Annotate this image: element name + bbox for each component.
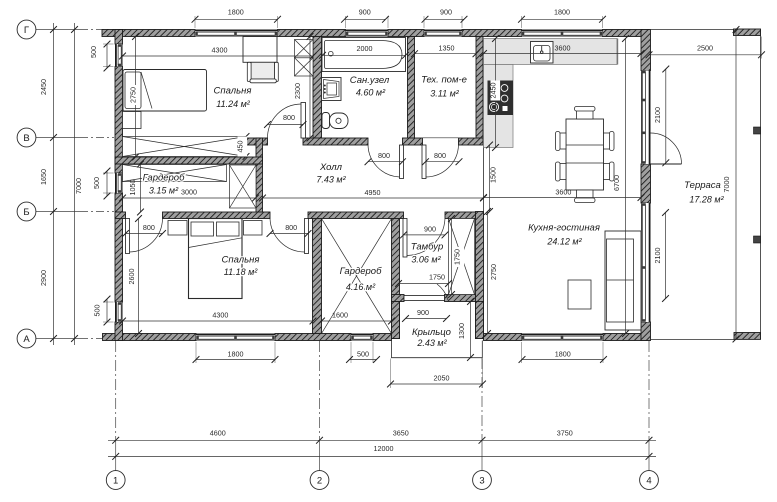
svg-text:2: 2 xyxy=(317,475,322,486)
svg-text:7000: 7000 xyxy=(74,178,83,194)
svg-text:4: 4 xyxy=(646,475,651,486)
svg-text:А: А xyxy=(23,334,30,345)
svg-text:1050: 1050 xyxy=(128,180,137,196)
svg-text:Сан.узел: Сан.узел xyxy=(350,75,390,86)
svg-text:800: 800 xyxy=(285,223,297,232)
svg-text:11.24 м²: 11.24 м² xyxy=(216,99,251,109)
svg-text:900: 900 xyxy=(417,308,429,317)
svg-text:Терраса: Терраса xyxy=(684,180,721,191)
svg-text:500: 500 xyxy=(357,350,369,359)
svg-text:2.43 м²: 2.43 м² xyxy=(416,338,447,348)
svg-text:900: 900 xyxy=(424,225,436,234)
svg-text:450: 450 xyxy=(236,141,245,153)
svg-text:11.18 м²: 11.18 м² xyxy=(224,267,259,277)
svg-text:1300: 1300 xyxy=(457,323,466,339)
svg-text:1800: 1800 xyxy=(554,7,570,16)
svg-text:3650: 3650 xyxy=(393,429,409,438)
svg-text:800: 800 xyxy=(143,223,155,232)
svg-text:900: 900 xyxy=(359,7,371,16)
svg-text:2450: 2450 xyxy=(489,83,498,99)
svg-text:800: 800 xyxy=(378,151,390,160)
svg-text:1500: 1500 xyxy=(489,167,498,183)
svg-text:3750: 3750 xyxy=(557,429,573,438)
svg-text:7000: 7000 xyxy=(722,177,731,193)
svg-text:4300: 4300 xyxy=(212,46,228,55)
svg-text:500: 500 xyxy=(89,46,98,58)
svg-text:900: 900 xyxy=(440,7,452,16)
svg-text:Спальня: Спальня xyxy=(214,86,252,97)
svg-text:3.15 м²: 3.15 м² xyxy=(149,186,179,196)
svg-text:4.60 м²: 4.60 м² xyxy=(356,88,386,98)
svg-text:800: 800 xyxy=(434,151,446,160)
svg-text:4.16 м²: 4.16 м² xyxy=(346,282,376,292)
svg-text:Г: Г xyxy=(24,25,29,36)
svg-text:Гардероб: Гардероб xyxy=(143,173,186,184)
svg-text:17.28 м²: 17.28 м² xyxy=(689,195,724,205)
svg-text:2000: 2000 xyxy=(357,44,373,53)
svg-text:3600: 3600 xyxy=(555,188,571,197)
svg-text:3600: 3600 xyxy=(555,44,571,53)
svg-text:12000: 12000 xyxy=(374,444,394,453)
svg-text:1800: 1800 xyxy=(228,7,244,16)
svg-text:2100: 2100 xyxy=(653,107,662,123)
svg-text:2750: 2750 xyxy=(129,87,138,103)
svg-text:Кухня-гостиная: Кухня-гостиная xyxy=(528,223,600,234)
svg-text:Тех. пом-е: Тех. пом-е xyxy=(421,75,467,86)
svg-text:4600: 4600 xyxy=(210,429,226,438)
svg-text:Б: Б xyxy=(23,207,29,218)
svg-text:1600: 1600 xyxy=(332,311,348,320)
svg-text:3000: 3000 xyxy=(181,188,197,197)
svg-text:3: 3 xyxy=(479,475,484,486)
svg-text:Тамбур: Тамбур xyxy=(411,242,444,253)
svg-text:Спальня: Спальня xyxy=(222,255,260,266)
svg-text:2100: 2100 xyxy=(653,248,662,264)
svg-text:4300: 4300 xyxy=(212,311,228,320)
svg-text:7.43 м²: 7.43 м² xyxy=(316,175,346,185)
svg-text:2500: 2500 xyxy=(697,44,713,53)
svg-text:1800: 1800 xyxy=(228,350,244,359)
svg-text:4950: 4950 xyxy=(365,188,381,197)
svg-text:800: 800 xyxy=(283,113,295,122)
svg-text:24.12 м²: 24.12 м² xyxy=(546,237,582,247)
svg-text:Холл: Холл xyxy=(319,162,343,173)
svg-text:3.06 м²: 3.06 м² xyxy=(411,255,441,265)
svg-text:1750: 1750 xyxy=(453,249,462,265)
svg-text:500: 500 xyxy=(92,177,101,189)
svg-text:2450: 2450 xyxy=(39,79,48,95)
svg-text:Гардероб: Гардероб xyxy=(340,266,383,277)
svg-text:3.11 м²: 3.11 м² xyxy=(430,89,460,99)
svg-text:2050: 2050 xyxy=(434,374,450,383)
svg-text:1650: 1650 xyxy=(39,169,48,185)
svg-text:2600: 2600 xyxy=(127,269,136,285)
svg-text:1750: 1750 xyxy=(429,273,445,282)
svg-text:1800: 1800 xyxy=(555,350,571,359)
svg-text:500: 500 xyxy=(93,305,102,317)
svg-text:2900: 2900 xyxy=(39,270,48,286)
svg-text:1350: 1350 xyxy=(439,44,455,53)
svg-text:Крыльцо: Крыльцо xyxy=(412,327,451,338)
svg-text:2750: 2750 xyxy=(489,264,498,280)
svg-text:2300: 2300 xyxy=(293,83,302,99)
svg-text:1: 1 xyxy=(113,475,118,486)
svg-text:6700: 6700 xyxy=(612,175,621,191)
svg-text:В: В xyxy=(23,133,29,144)
